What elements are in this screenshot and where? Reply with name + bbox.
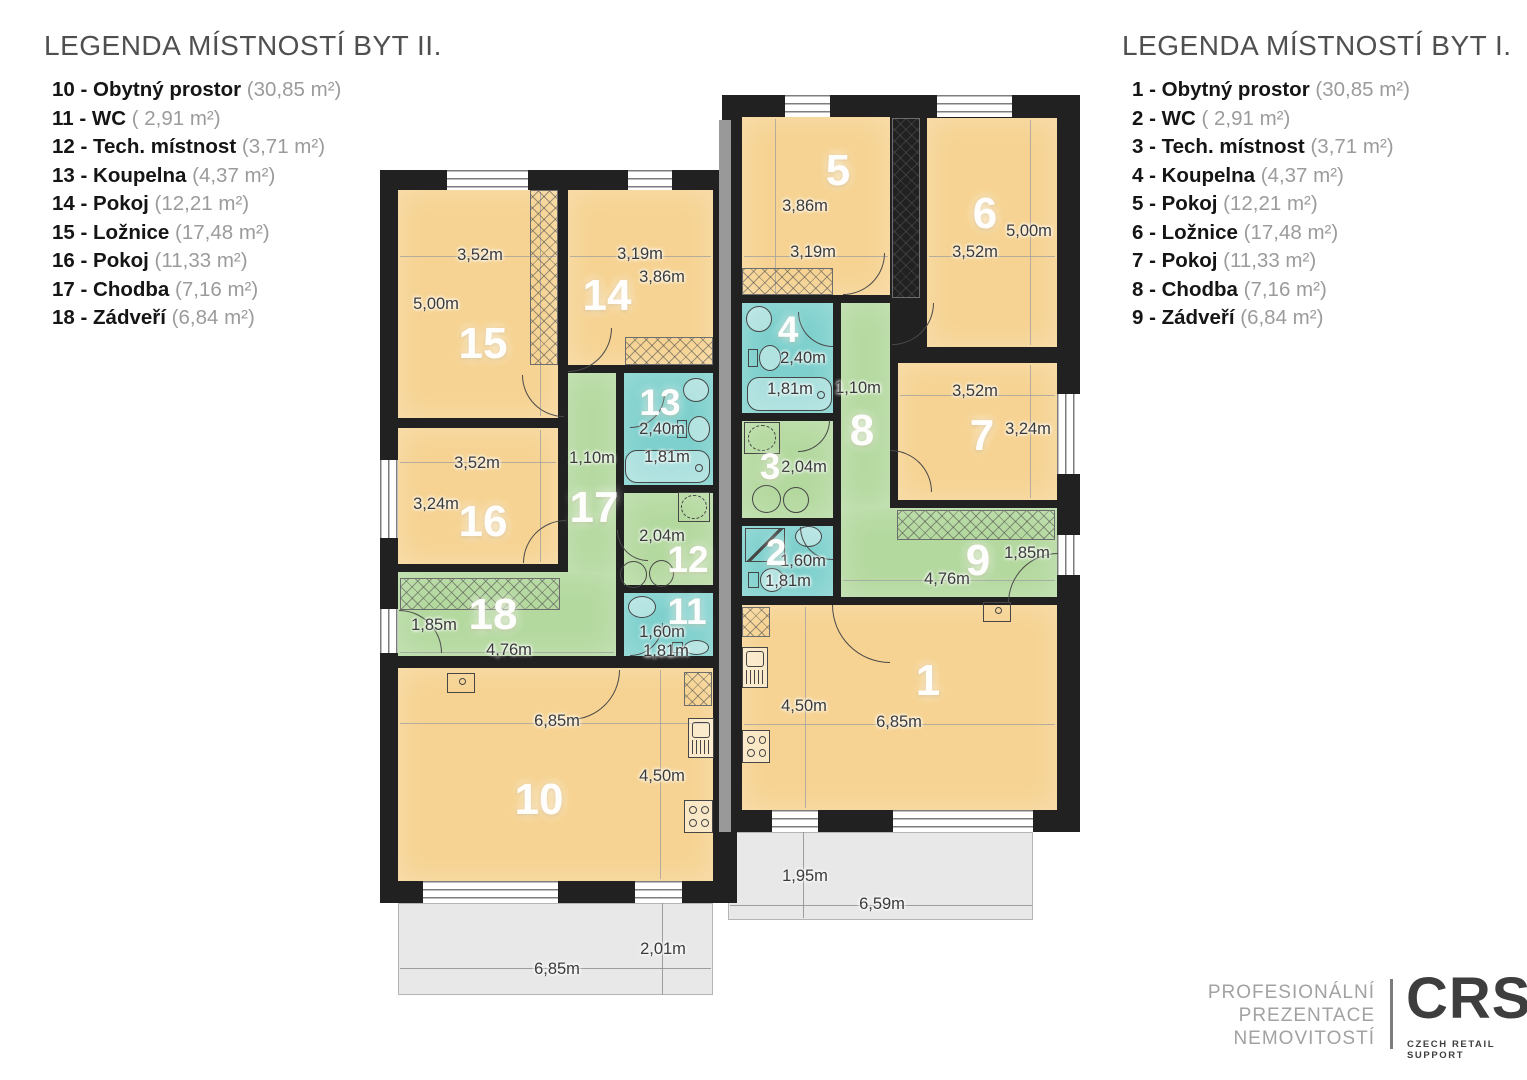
terrace-left	[398, 903, 713, 995]
dimension-hairline	[570, 256, 711, 257]
dimension-hairline	[1030, 120, 1031, 345]
wardrobe-icon	[400, 578, 560, 610]
legend-item-label: 17 - Chodba	[52, 278, 169, 301]
sink-drainer	[692, 740, 710, 754]
legend-item-area: (7,16 m²)	[1238, 278, 1327, 301]
dimension-hairline	[660, 670, 661, 879]
dimension-hairline	[900, 395, 1055, 396]
legend-item: 1 - Obytný prostor (30,85 m²)	[1132, 76, 1512, 105]
party-wall-stripe	[719, 120, 731, 832]
window	[380, 460, 398, 538]
cabinet-icon	[447, 673, 475, 693]
room-17	[568, 373, 616, 578]
legend-item-label: 10 - Obytný prostor	[52, 78, 241, 101]
shower-icon	[745, 528, 785, 562]
dimension-hairline	[400, 462, 556, 463]
legend-item: 5 - Pokoj (12,21 m²)	[1132, 190, 1512, 219]
toilet-icon	[748, 568, 785, 592]
legend-item-area: ( 2,91 m²)	[126, 107, 221, 130]
toilet-tank	[748, 349, 758, 367]
legend-item-label: 2 - WC	[1132, 107, 1196, 130]
legend-byt1: LEGENDA MÍSTNOSTÍ BYT I. 1 - Obytný pros…	[1122, 30, 1512, 333]
legend-item-area: ( 2,91 m²)	[1196, 107, 1291, 130]
window	[1057, 394, 1080, 474]
legend-item-area: (7,16 m²)	[169, 278, 258, 301]
footer-line-2: PREZENTACE	[1208, 1004, 1375, 1027]
sink-drainer	[746, 670, 764, 684]
legend-item-area: (17,48 m²)	[169, 221, 269, 244]
legend-item-label: 7 - Pokoj	[1132, 249, 1217, 272]
toilet-icon	[672, 640, 710, 655]
legend-item: 9 - Zádveří (6,84 m²)	[1132, 304, 1512, 333]
window	[1057, 535, 1080, 575]
boiler-circle	[748, 425, 777, 450]
window	[380, 609, 398, 653]
floor-plan-page: LEGENDA MÍSTNOSTÍ BYT II. 10 - Obytný pr…	[0, 0, 1527, 1080]
legend-item-label: 18 - Zádveří	[52, 306, 166, 329]
sink-basin	[746, 651, 764, 667]
room-8	[841, 303, 890, 508]
window	[785, 95, 830, 117]
window	[937, 95, 1012, 117]
burner-dot	[759, 736, 767, 744]
wardrobe-icon	[897, 510, 1055, 540]
toilet-icon	[748, 345, 782, 371]
dimension-hairline	[929, 256, 1055, 257]
legend-item-area: (12,21 m²)	[149, 192, 249, 215]
wardrobe-icon	[625, 337, 713, 365]
toilet-bowl	[688, 416, 710, 442]
legend-item: 2 - WC ( 2,91 m²)	[1132, 105, 1512, 134]
legend-item-area: (3,71 m²)	[236, 135, 325, 158]
knob-dot	[459, 678, 466, 685]
drain-dot	[817, 391, 825, 399]
legend-item-label: 4 - Koupelna	[1132, 164, 1255, 187]
legend-item-area: (17,48 m²)	[1238, 221, 1338, 244]
washer-icon	[783, 487, 809, 513]
room-10	[398, 668, 713, 881]
washer-icon	[620, 561, 647, 588]
washer-icon	[649, 560, 674, 587]
wardrobe-icon	[742, 607, 770, 637]
boiler-circle	[681, 495, 706, 519]
dimension-hairline	[775, 119, 776, 293]
dimension-hairline	[1030, 365, 1031, 498]
legend-item-area: (4,37 m²)	[1255, 164, 1344, 187]
legend-item: 11 - WC ( 2,91 m²)	[52, 105, 442, 134]
legend-item: 12 - Tech. místnost (3,71 m²)	[52, 133, 442, 162]
burner-dot	[747, 736, 755, 744]
legend-item-label: 8 - Chodba	[1132, 278, 1238, 301]
dimension-hairline	[744, 724, 1055, 725]
legend-byt1-items: 1 - Obytný prostor (30,85 m²)2 - WC ( 2,…	[1132, 76, 1512, 333]
terrace-right	[728, 832, 1033, 920]
legend-item: 6 - Ložnice (17,48 m²)	[1132, 219, 1512, 248]
legend-byt2-title: LEGENDA MÍSTNOSTÍ BYT II.	[44, 30, 442, 62]
legend-item: 8 - Chodba (7,16 m²)	[1132, 276, 1512, 305]
burner-dot	[689, 819, 697, 827]
legend-item-label: 14 - Pokoj	[52, 192, 149, 215]
dimension-line	[730, 905, 1032, 906]
legend-byt1-title: LEGENDA MÍSTNOSTÍ BYT I.	[1122, 30, 1512, 62]
sink-basin	[692, 722, 710, 738]
legend-item-label: 5 - Pokoj	[1132, 192, 1217, 215]
bathtub-icon	[747, 377, 832, 411]
burner-dot	[701, 819, 709, 827]
boiler-icon	[678, 492, 710, 522]
footer-line-1: PROFESIONÁLNÍ	[1208, 981, 1375, 1004]
dimension-line	[662, 903, 663, 995]
toilet-icon	[677, 416, 711, 442]
room-6	[927, 118, 1057, 347]
legend-item-area: (11,33 m²)	[1217, 249, 1316, 272]
burner-dot	[747, 749, 755, 757]
toilet-tank	[748, 572, 759, 589]
window	[772, 810, 818, 832]
legend-item-label: 6 - Ložnice	[1132, 221, 1238, 244]
legend-item-label: 11 - WC	[52, 107, 126, 130]
boiler-icon	[744, 422, 780, 454]
legend-item: 7 - Pokoj (11,33 m²)	[1132, 247, 1512, 276]
washbasin-icon	[628, 596, 656, 618]
legend-item-area: (4,37 m²)	[186, 164, 275, 187]
legend-item-label: 13 - Koupelna	[52, 164, 186, 187]
legend-item-area: (30,85 m²)	[241, 78, 341, 101]
sink-icon	[688, 718, 714, 758]
legend-item-area: (11,33 m²)	[149, 249, 248, 272]
dimension-line	[803, 832, 804, 918]
crs-logo: CRS	[1406, 969, 1527, 1029]
wardrobe-icon	[892, 118, 920, 298]
crs-logo-tagline: CZECH RETAIL SUPPORT	[1407, 1039, 1527, 1061]
washer-icon	[752, 485, 781, 513]
legend-item-area: (30,85 m²)	[1310, 78, 1410, 101]
toilet-bowl	[760, 568, 784, 592]
window	[447, 170, 528, 190]
toilet-bowl	[684, 640, 709, 655]
window	[635, 881, 682, 903]
washbasin-icon	[746, 306, 772, 332]
legend-item: 4 - Koupelna (4,37 m²)	[1132, 162, 1512, 191]
burner-dot	[701, 806, 709, 814]
toilet-tank	[677, 420, 687, 438]
stove-icon	[684, 800, 713, 833]
sink-icon	[742, 647, 768, 688]
dimension-hairline	[400, 723, 710, 724]
legend-item-label: 9 - Zádveří	[1132, 306, 1235, 329]
dimension-line	[400, 968, 711, 969]
legend-item-label: 16 - Pokoj	[52, 249, 149, 272]
washbasin-icon	[683, 378, 709, 402]
legend-item: 10 - Obytný prostor (30,85 m²)	[52, 76, 442, 105]
legend-item-area: (3,71 m²)	[1305, 135, 1394, 158]
legend-item-label: 3 - Tech. místnost	[1132, 135, 1305, 158]
legend-item-area: (6,84 m²)	[1235, 306, 1324, 329]
stove-icon	[742, 730, 770, 763]
knob-dot	[995, 607, 1002, 614]
wardrobe-icon	[684, 672, 712, 706]
toilet-bowl	[759, 345, 781, 371]
window	[893, 810, 1033, 832]
room-1	[742, 605, 1057, 810]
legend-item-label: 15 - Ložnice	[52, 221, 169, 244]
dimension-hairline	[805, 607, 806, 808]
drain-dot	[695, 464, 703, 472]
wardrobe-icon	[742, 268, 833, 295]
bathtub-icon	[625, 450, 710, 483]
footer-divider	[1390, 979, 1393, 1049]
toilet-tank	[672, 642, 683, 653]
wardrobe-icon	[530, 190, 558, 365]
burner-dot	[759, 749, 767, 757]
legend-item-label: 12 - Tech. místnost	[52, 135, 236, 158]
legend-item-area: (6,84 m²)	[166, 306, 255, 329]
legend-item-area: (12,21 m²)	[1217, 192, 1317, 215]
legend-item: 3 - Tech. místnost (3,71 m²)	[1132, 133, 1512, 162]
cabinet-icon	[983, 602, 1011, 622]
window	[423, 881, 558, 903]
window	[628, 170, 672, 190]
footer-line-3: NEMOVITOSTÍ	[1208, 1027, 1375, 1050]
footer-text: PROFESIONÁLNÍ PREZENTACE NEMOVITOSTÍ	[1208, 981, 1375, 1050]
burner-dot	[689, 806, 697, 814]
legend-item-label: 1 - Obytný prostor	[1132, 78, 1310, 101]
